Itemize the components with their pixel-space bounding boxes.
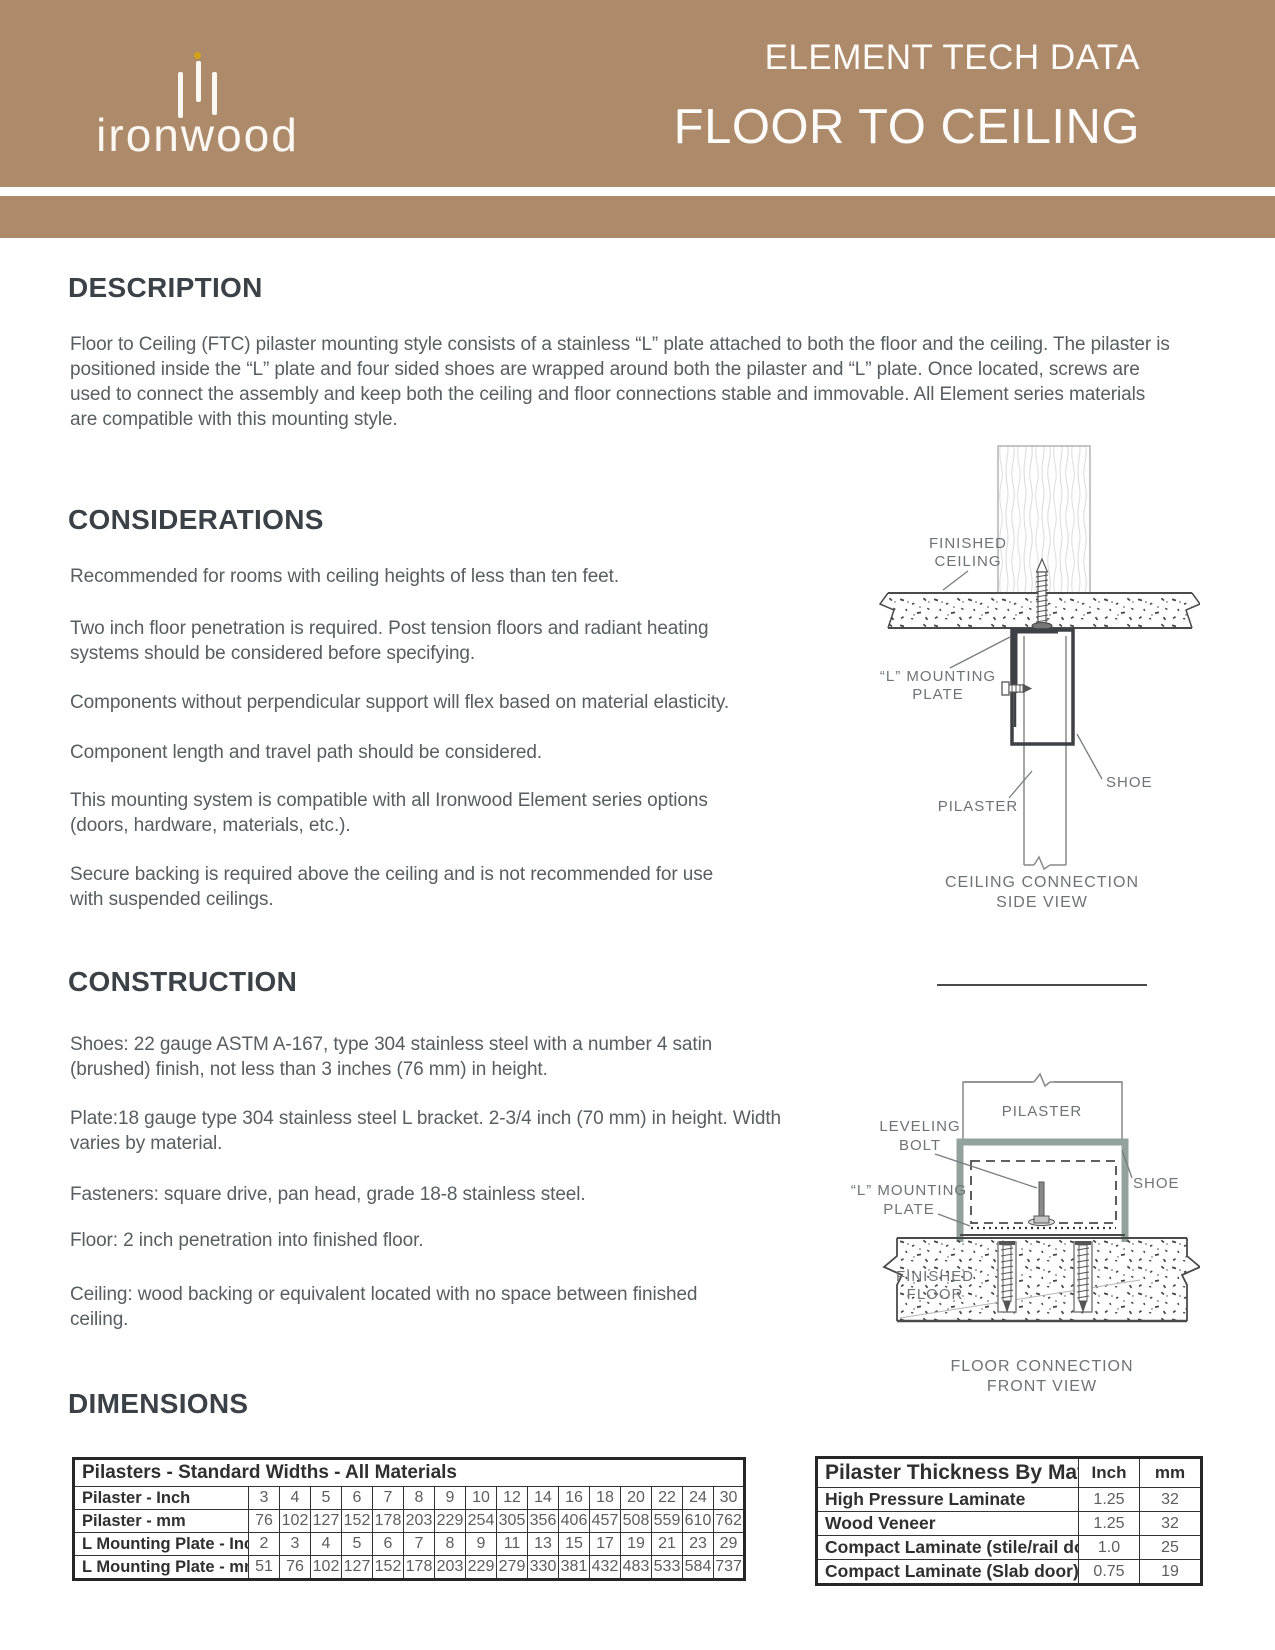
value-cell: 20 [621,1487,652,1510]
row-label-cell: L Mounting Plate - mm [74,1556,249,1580]
value-cell: 102 [311,1556,342,1580]
row-label-cell: Pilaster - mm [74,1510,249,1533]
construction-paragraph: Shoes: 22 gauge ASTM A-167, type 304 sta… [70,1032,770,1082]
value-cell: 178 [404,1556,435,1580]
ceiling-connection-diagram: FINISHED CEILING “L” MOUNTING PLATE SHOE… [830,440,1200,910]
widths-table-title: Pilasters - Standard Widths - All Materi… [74,1459,745,1487]
value-cell: 2 [249,1533,280,1556]
row-label-cell: L Mounting Plate - Inch [74,1533,249,1556]
logo-bar-icon [196,61,201,102]
considerations-heading: CONSIDERATIONS [68,504,324,536]
value-cell: 279 [497,1556,528,1580]
inch-value-cell: 1.0 [1079,1536,1140,1560]
value-cell: 9 [466,1533,497,1556]
value-cell: 6 [342,1487,373,1510]
value-cell: 152 [342,1510,373,1533]
value-cell: 76 [280,1556,311,1580]
value-cell: 5 [342,1533,373,1556]
table-header-row: Pilaster Thickness By Material Inch mm [817,1458,1202,1488]
finished-ceiling-label: FINISHED [929,535,1007,552]
value-cell: 51 [249,1556,280,1580]
value-cell: 8 [404,1487,435,1510]
value-cell: 737 [714,1556,745,1580]
value-cell: 18 [590,1487,621,1510]
page-title: FLOOR TO CEILING [674,99,1140,155]
value-cell: 12 [497,1487,528,1510]
tech-data-page: ironwood ELEMENT TECH DATA FLOOR TO CEIL… [0,0,1275,1650]
value-cell: 610 [683,1510,714,1533]
header-kicker: ELEMENT TECH DATA [765,38,1140,78]
value-cell: 762 [714,1510,745,1533]
value-cell: 76 [249,1510,280,1533]
value-cell: 16 [559,1487,590,1510]
inch-column-header: Inch [1079,1458,1140,1488]
mm-value-cell: 32 [1140,1488,1202,1512]
value-cell: 102 [280,1510,311,1533]
ironwood-logo: ironwood [70,0,325,187]
value-cell: 356 [528,1510,559,1533]
pilaster-widths-table: Pilasters - Standard Widths - All Materi… [72,1457,746,1581]
table-row: Wood Veneer 1.25 32 [817,1512,1202,1536]
diagram-caption: SIDE VIEW [996,894,1088,910]
value-cell: 11 [497,1533,528,1556]
value-cell: 533 [652,1556,683,1580]
leveling-bolt-label: BOLT [899,1137,941,1154]
value-cell: 178 [373,1510,404,1533]
pilaster-shape [1024,636,1066,869]
value-cell: 229 [466,1556,497,1580]
value-cell: 229 [435,1510,466,1533]
value-cell: 3 [280,1533,311,1556]
value-cell: 5 [311,1487,342,1510]
shoe-label: SHOE [1106,774,1153,791]
value-cell: 483 [621,1556,652,1580]
value-cell: 6 [373,1533,404,1556]
l-mounting-plate-label: “L” MOUNTING [880,668,996,685]
value-cell: 406 [559,1510,590,1533]
considerations-paragraph: Two inch floor penetration is required. … [70,616,770,666]
header-band-lower [0,196,1275,238]
row-label-cell: Pilaster - Inch [74,1487,249,1510]
table-row: Compact Laminate (stile/rail door) 1.0 2… [817,1536,1202,1560]
value-cell: 3 [249,1487,280,1510]
table-row: L Mounting Plate - Inch 2 3 4 5 6 7 8 9 … [74,1533,745,1556]
considerations-paragraph: Secure backing is required above the cei… [70,862,730,912]
inch-value-cell: 1.25 [1079,1488,1140,1512]
pilaster-thickness-table: Pilaster Thickness By Material Inch mm H… [815,1456,1203,1586]
construction-paragraph: Floor: 2 inch penetration into finished … [70,1228,770,1253]
diagram-divider [937,984,1147,986]
value-cell: 381 [559,1556,590,1580]
value-cell: 15 [559,1533,590,1556]
table-row: High Pressure Laminate 1.25 32 [817,1488,1202,1512]
brand-wordmark: ironwood [70,108,325,162]
table-row: Pilaster - mm 76 102 127 152 178 203 229… [74,1510,745,1533]
considerations-paragraph: Components without perpendicular support… [70,690,790,715]
value-cell: 254 [466,1510,497,1533]
diagram-caption: FLOOR CONNECTION [950,1358,1133,1375]
thickness-table-title: Pilaster Thickness By Material [817,1458,1079,1488]
finished-floor-label: FINISHED [896,1268,974,1285]
considerations-paragraph: Recommended for rooms with ceiling heigh… [70,564,770,589]
considerations-paragraph: This mounting system is compatible with … [70,788,770,838]
pilaster-label: PILASTER [1002,1103,1083,1120]
value-cell: 23 [683,1533,714,1556]
description-body: Floor to Ceiling (FTC) pilaster mounting… [70,332,1170,432]
table-title-row: Pilasters - Standard Widths - All Materi… [74,1459,745,1487]
value-cell: 21 [652,1533,683,1556]
value-cell: 30 [714,1487,745,1510]
value-cell: 457 [590,1510,621,1533]
value-cell: 584 [683,1556,714,1580]
mm-value-cell: 32 [1140,1512,1202,1536]
value-cell: 127 [342,1556,373,1580]
construction-paragraph: Plate:18 gauge type 304 stainless steel … [70,1106,790,1156]
material-cell: Compact Laminate (Slab door) [817,1560,1079,1585]
value-cell: 29 [714,1533,745,1556]
pilaster-label: PILASTER [938,798,1019,815]
value-cell: 203 [435,1556,466,1580]
finished-ceiling-label: CEILING [934,553,1001,570]
value-cell: 559 [652,1510,683,1533]
floor-connection-diagram: PILASTER [830,1030,1200,1400]
diagram-caption: CEILING CONNECTION [945,874,1139,891]
value-cell: 432 [590,1556,621,1580]
inch-value-cell: 1.25 [1079,1512,1140,1536]
shoe-label: SHOE [1133,1175,1180,1192]
floor-screw-icon [1074,1241,1092,1313]
leveling-bolt-icon [1029,1182,1055,1226]
mm-value-cell: 25 [1140,1536,1202,1560]
inch-value-cell: 0.75 [1079,1560,1140,1585]
table-row: L Mounting Plate - mm 51 76 102 127 152 … [74,1556,745,1580]
construction-paragraph: Fasteners: square drive, pan head, grade… [70,1182,770,1207]
table-row: Pilaster - Inch 3 4 5 6 7 8 9 10 12 14 1… [74,1487,745,1510]
value-cell: 10 [466,1487,497,1510]
construction-heading: CONSTRUCTION [68,966,297,998]
dimensions-heading: DIMENSIONS [68,1388,248,1420]
material-cell: Wood Veneer [817,1512,1079,1536]
value-cell: 203 [404,1510,435,1533]
material-cell: High Pressure Laminate [817,1488,1079,1512]
material-cell: Compact Laminate (stile/rail door) [817,1536,1079,1560]
description-heading: DESCRIPTION [68,272,263,304]
value-cell: 9 [435,1487,466,1510]
value-cell: 19 [621,1533,652,1556]
value-cell: 7 [404,1533,435,1556]
value-cell: 7 [373,1487,404,1510]
value-cell: 17 [590,1533,621,1556]
value-cell: 305 [497,1510,528,1533]
mm-column-header: mm [1140,1458,1202,1488]
considerations-paragraph: Component length and travel path should … [70,740,770,765]
logo-gold-dot-icon [194,52,201,59]
value-cell: 4 [280,1487,311,1510]
diagram-caption: FRONT VIEW [987,1378,1097,1395]
value-cell: 22 [652,1487,683,1510]
l-mounting-plate-label: PLATE [912,686,963,703]
value-cell: 14 [528,1487,559,1510]
value-cell: 330 [528,1556,559,1580]
value-cell: 152 [373,1556,404,1580]
floor-screw-icon [998,1241,1016,1313]
finished-floor-label: FLOOR [907,1286,964,1303]
construction-paragraph: Ceiling: wood backing or equivalent loca… [70,1282,750,1332]
value-cell: 8 [435,1533,466,1556]
value-cell: 13 [528,1533,559,1556]
value-cell: 4 [311,1533,342,1556]
value-cell: 24 [683,1487,714,1510]
mm-value-cell: 19 [1140,1560,1202,1585]
l-mounting-plate-label: PLATE [883,1201,934,1218]
value-cell: 127 [311,1510,342,1533]
l-mounting-plate-label: “L” MOUNTING [851,1182,967,1199]
value-cell: 508 [621,1510,652,1533]
table-row: Compact Laminate (Slab door) 0.75 19 [817,1560,1202,1585]
leveling-bolt-label: LEVELING [879,1118,960,1135]
